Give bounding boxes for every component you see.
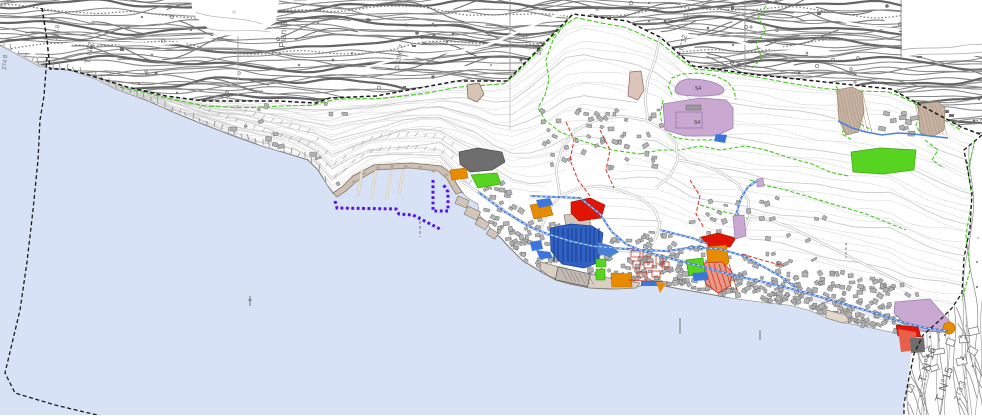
svg-text:S4: S4	[694, 120, 700, 126]
svg-text:S4: S4	[695, 86, 701, 92]
